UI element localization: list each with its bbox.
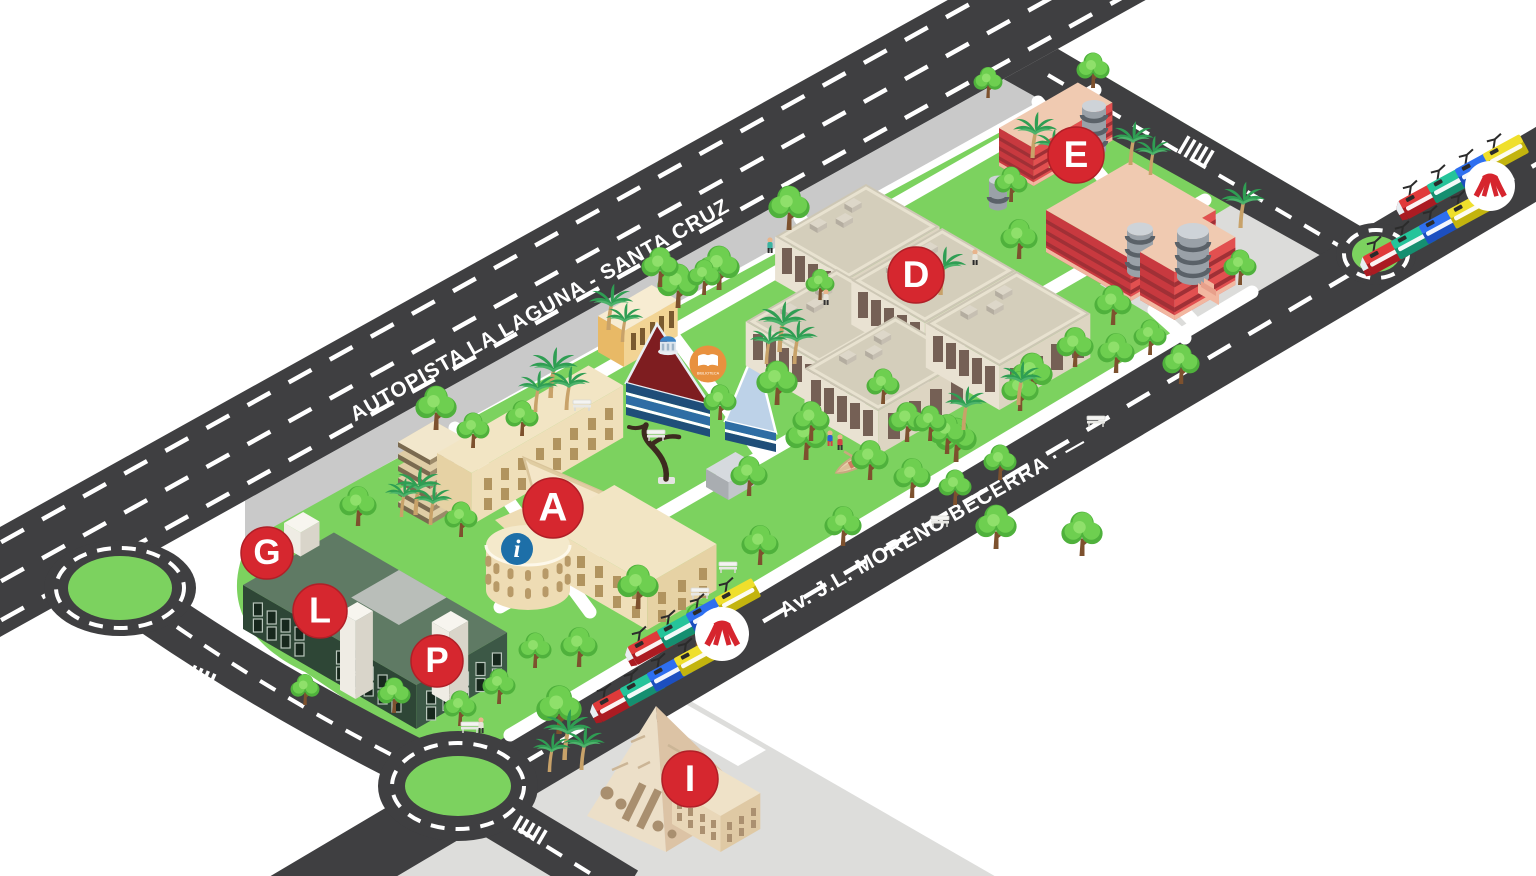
svg-text:L: L <box>309 589 331 630</box>
svg-text:E: E <box>1064 134 1089 175</box>
svg-text:i: i <box>514 536 521 563</box>
svg-text:I: I <box>685 758 695 799</box>
svg-text:D: D <box>903 254 930 295</box>
svg-text:P: P <box>425 641 448 680</box>
svg-text:A: A <box>539 486 568 530</box>
svg-text:BIBLIOTECA: BIBLIOTECA <box>697 372 720 376</box>
svg-text:G: G <box>253 533 280 572</box>
